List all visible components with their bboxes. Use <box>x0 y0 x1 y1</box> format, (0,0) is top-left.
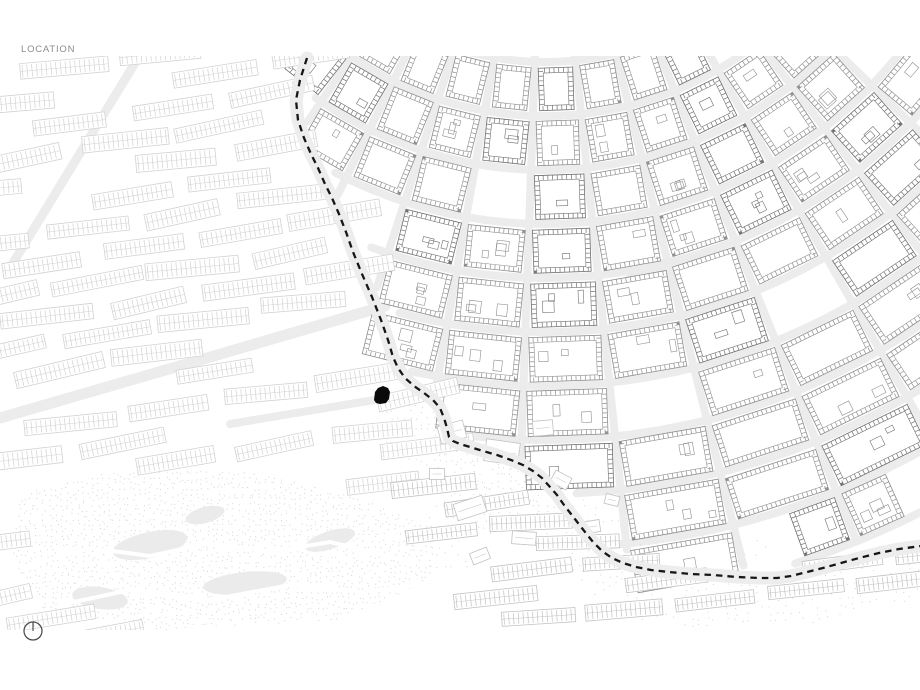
city-fabric <box>0 17 920 651</box>
map-canvas <box>0 0 920 690</box>
north-arrow-icon <box>24 622 42 640</box>
page: LOCATION <box>0 0 920 690</box>
